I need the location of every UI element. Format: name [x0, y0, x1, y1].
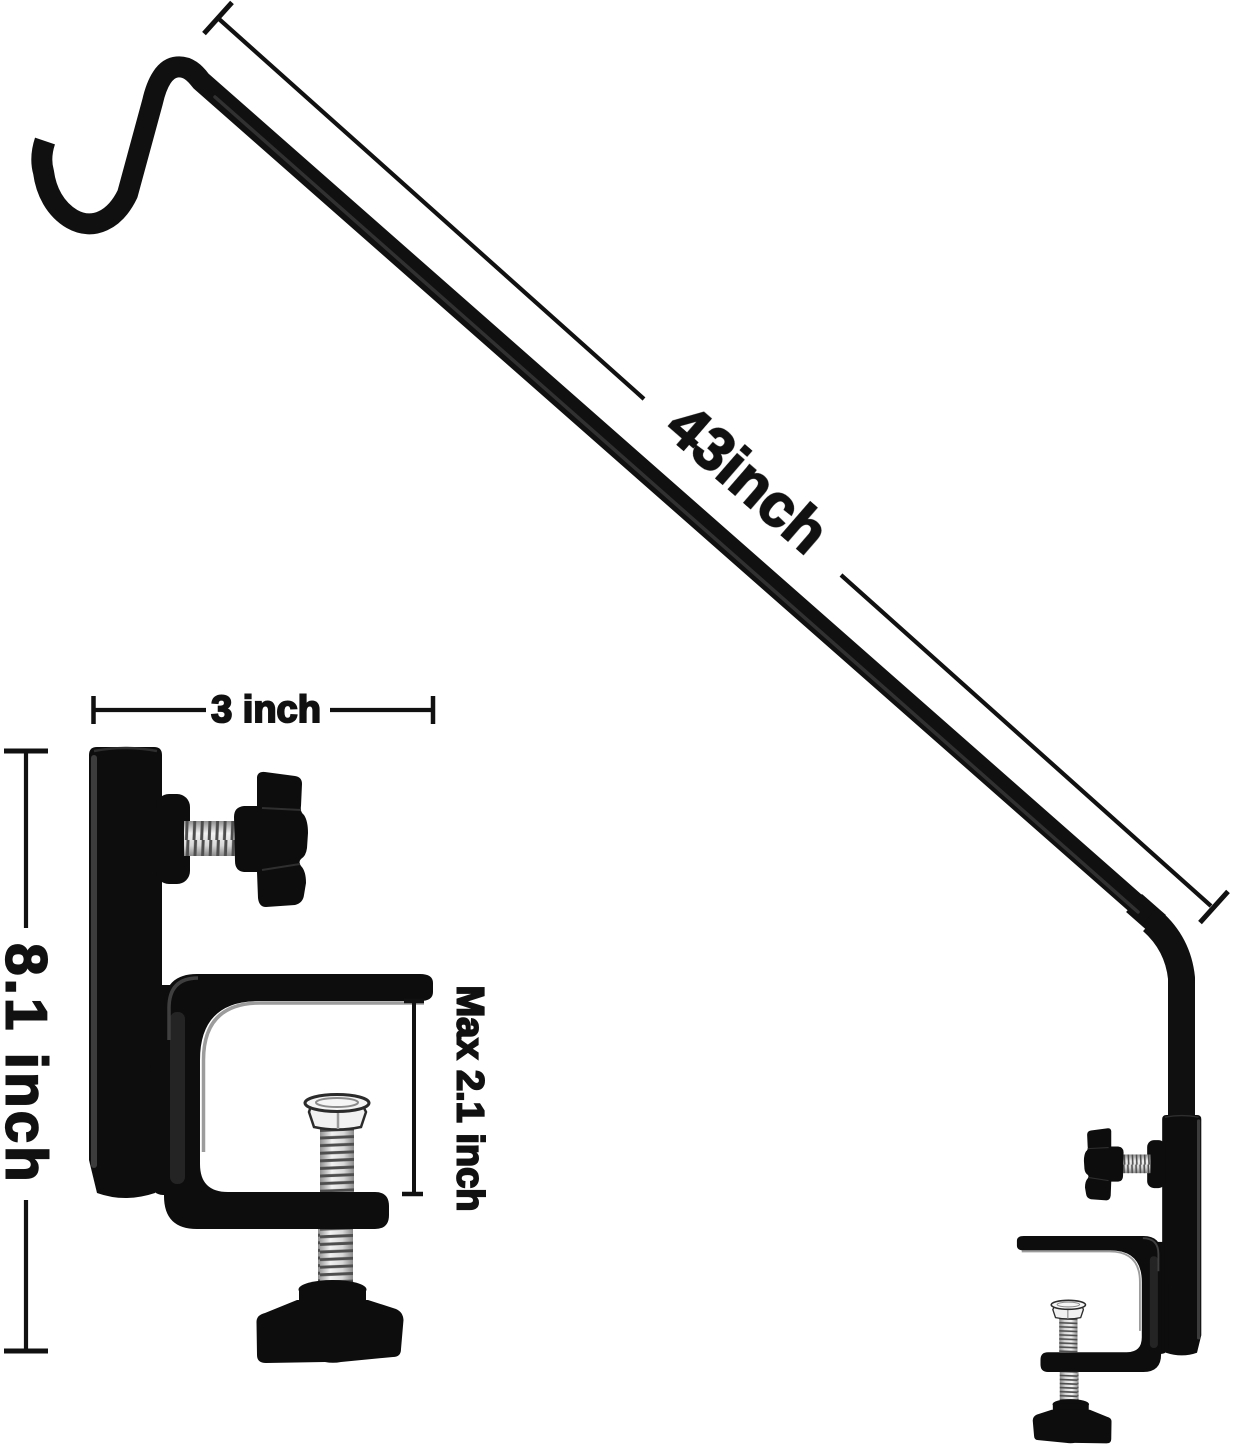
svg-text:8.1 inch: 8.1 inch [0, 943, 59, 1185]
svg-text:Max 2.1 inch: Max 2.1 inch [449, 986, 491, 1212]
svg-text:3 inch: 3 inch [211, 689, 321, 731]
